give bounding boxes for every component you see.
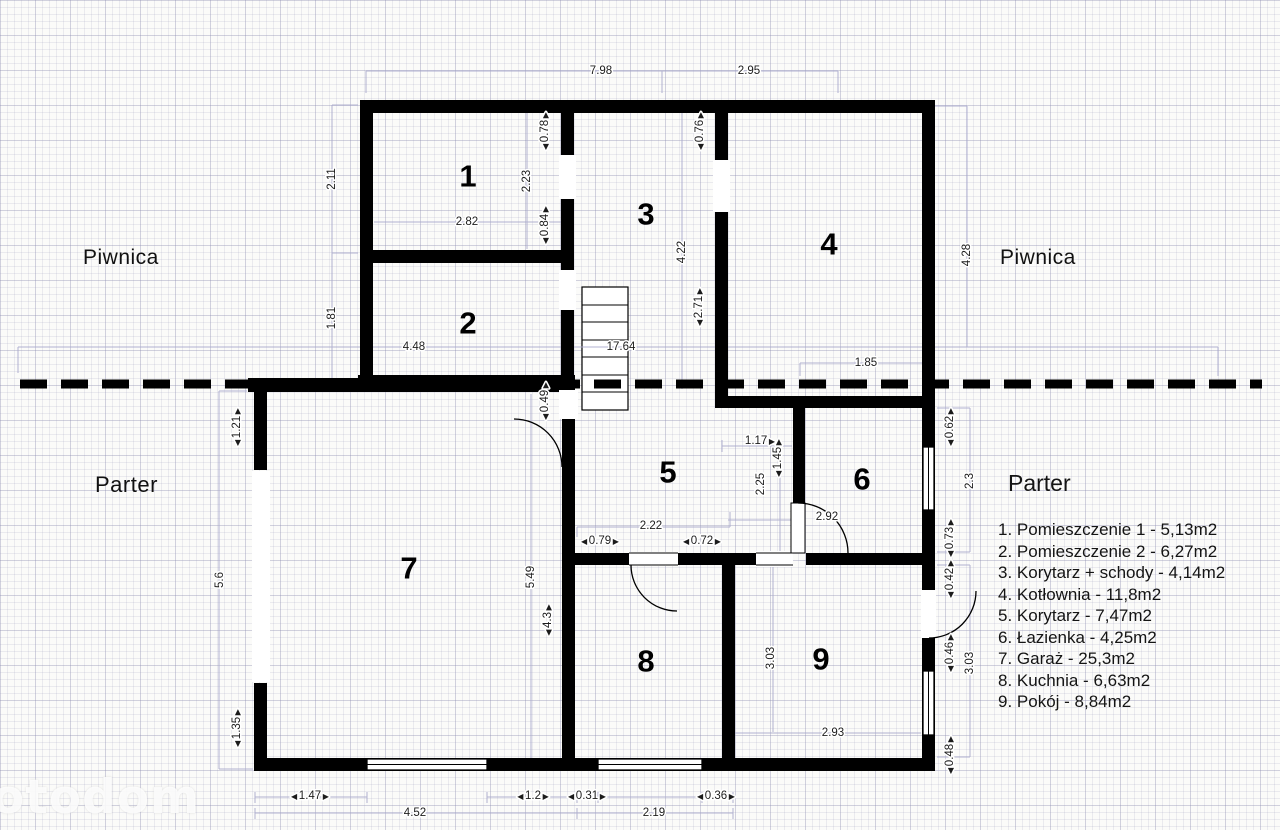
dimension-label: 1.85	[855, 357, 877, 369]
dimension-label: ◀ 1.45 ▶	[772, 438, 784, 477]
dimension-label: ◀ 0.73 ▶	[944, 518, 956, 557]
dimension-label: ◀ 1.21 ▶	[231, 407, 243, 446]
dimension-label: ◀ 0.42 ▶	[944, 559, 956, 598]
section-label-basement-left: Piwnica	[83, 246, 159, 270]
dimension-label: 2.93	[822, 727, 844, 739]
legend-items: 1. Pomieszczenie 1 - 5,13m22. Pomieszcze…	[998, 519, 1225, 713]
door-swing-arc-garage	[514, 419, 562, 467]
dimension-label: ◀ 0.84 ▶	[539, 205, 551, 244]
watermark: otodom	[0, 770, 200, 825]
dimension-label: ◀ 0.62 ▶	[944, 407, 956, 446]
legend-item: 5. Korytarz - 7,47m2	[998, 605, 1225, 627]
dimension-label: 1.81	[326, 307, 338, 329]
legend-item: 2. Pomieszczenie 2 - 6,27m2	[998, 541, 1225, 563]
legend-item: 1. Pomieszczenie 1 - 5,13m2	[998, 519, 1225, 541]
dimension-label: ◀ 1.47 ▶	[291, 790, 330, 802]
dimension-label: ◀ 0.72 ▶	[683, 535, 722, 547]
dimension-label: ◀ 2.71 ▶	[693, 287, 705, 326]
room-number-label: 7	[400, 551, 417, 586]
dimension-label: 4.48	[403, 341, 425, 353]
window-symbols	[367, 447, 934, 770]
legend-item: 4. Kotłownia - 11,8m2	[998, 584, 1225, 606]
door-swing-arc-kitchen	[631, 565, 677, 611]
dimension-label: 2.92	[816, 511, 838, 523]
dimension-label: 7.98	[590, 65, 612, 77]
legend-title: Parter	[1008, 470, 1225, 497]
dimension-label: 5.49	[525, 566, 537, 588]
dimension-label: ◀ 0.31 ▶	[568, 790, 607, 802]
room-number-label: 8	[637, 644, 654, 679]
room-number-label: 2	[459, 306, 476, 341]
section-label-ground-left: Parter	[95, 472, 158, 498]
dimension-label: 4.22	[676, 241, 688, 263]
floorplan-page: 7.982.952.111.812.822.23◀ 0.78 ▶◀ 0.84 ▶…	[0, 0, 1280, 830]
legend-item: 9. Pokój - 8,84m2	[998, 691, 1225, 713]
dimension-label: ◀ 1.2 ▶	[517, 790, 549, 802]
legend-item: 7. Garaż - 25,3m2	[998, 648, 1225, 670]
dimension-label: 3.03	[765, 647, 777, 669]
dimension-label: ◀ 0.36 ▶	[697, 790, 736, 802]
door-symbols	[514, 419, 976, 638]
window-mid-lines	[367, 447, 929, 765]
legend-item: 6. Łazienka - 4,25m2	[998, 627, 1225, 649]
room-number-label: 4	[820, 227, 838, 262]
dimension-label: 2.95	[738, 65, 760, 77]
dimension-label: 4.52	[404, 807, 426, 819]
legend: Parter 1. Pomieszczenie 1 - 5,13m22. Pom…	[998, 470, 1225, 713]
dimension-label: 2.11	[326, 168, 338, 190]
dimension-label: ◀ 0.46 ▶	[944, 633, 956, 672]
dimension-label: 1.17 ▶	[745, 435, 776, 447]
door-leaf-bathroom	[791, 503, 805, 553]
dimension-label: 2.23	[521, 170, 533, 192]
dimension-label: ◀ 0.78 ▶	[539, 111, 551, 150]
dimension-label: ◀ 0.76 ▶	[694, 111, 706, 150]
walls	[248, 100, 935, 771]
dimension-label: ◀ 0.79 ▶	[581, 535, 620, 547]
legend-item: 3. Korytarz + schody - 4,14m2	[998, 562, 1225, 584]
dimension-label: 3.03	[964, 652, 976, 674]
dimension-label: 2.19	[643, 807, 665, 819]
legend-item: 8. Kuchnia - 6,63m2	[998, 670, 1225, 692]
dimension-label: ◀ 1.35 ▶	[231, 708, 243, 747]
dimension-label: 2.22	[640, 520, 662, 532]
dimension-label: 4.28	[961, 244, 973, 266]
room-number-label: 9	[812, 642, 829, 677]
room-number-label: 3	[637, 197, 654, 232]
dimension-label: 2.82	[456, 216, 478, 228]
section-label-basement-right: Piwnica	[1000, 246, 1076, 270]
dimension-label: 2.3	[964, 473, 976, 489]
dimension-label: ◀ 0.48 ▶	[944, 735, 956, 774]
dimension-label: 5.6	[214, 572, 226, 588]
dimension-label: ◀ 0.49 ▶	[539, 381, 551, 420]
room-number-label: 5	[659, 455, 676, 490]
room-number-label: 1	[459, 159, 476, 194]
room-number-label: 6	[853, 462, 870, 497]
dimension-label: 17.64	[607, 341, 636, 353]
dimension-label: 2.25	[755, 473, 767, 495]
dimension-labels: 7.982.952.111.812.822.23◀ 0.78 ▶◀ 0.84 ▶…	[214, 65, 976, 819]
dimension-label: ◀ 4.3 ▶	[542, 603, 554, 635]
